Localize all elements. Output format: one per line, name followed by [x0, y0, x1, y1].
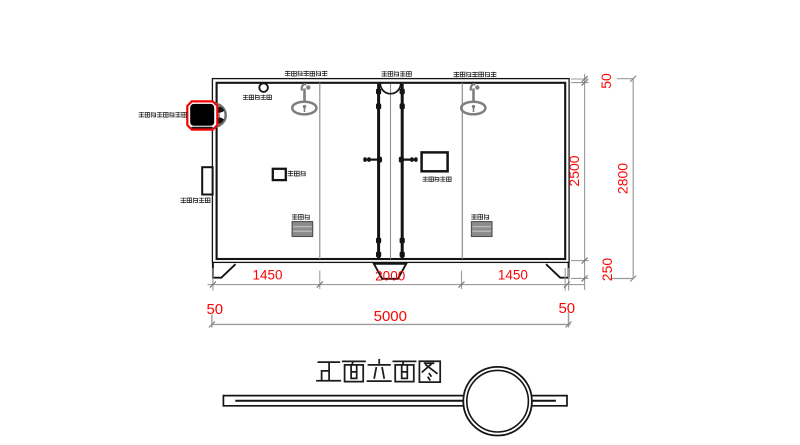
svg-text:50: 50	[558, 300, 575, 317]
svg-text:2500: 2500	[566, 155, 582, 186]
svg-text:50: 50	[598, 73, 614, 89]
svg-text:2800: 2800	[614, 163, 630, 194]
svg-text:1450: 1450	[498, 268, 528, 283]
svg-text:2000: 2000	[375, 268, 405, 283]
svg-text:5000: 5000	[374, 308, 407, 325]
svg-text:250: 250	[599, 258, 615, 282]
svg-text:1450: 1450	[252, 267, 282, 282]
svg-text:50: 50	[206, 301, 223, 318]
